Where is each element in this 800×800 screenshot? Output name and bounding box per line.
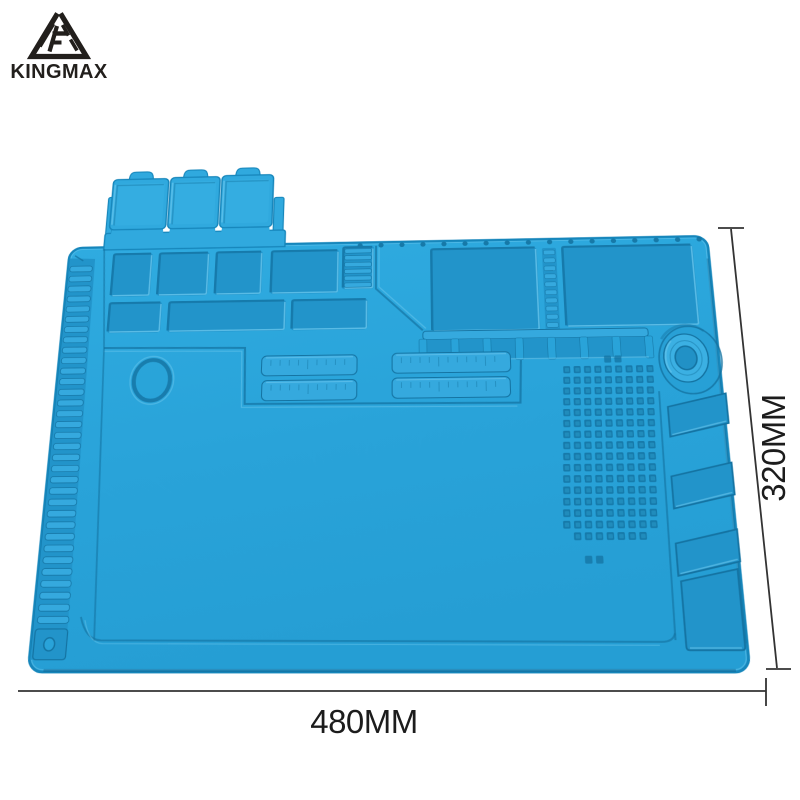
svg-text:320MM: 320MM — [755, 394, 792, 502]
svg-text:480MM: 480MM — [310, 703, 418, 740]
